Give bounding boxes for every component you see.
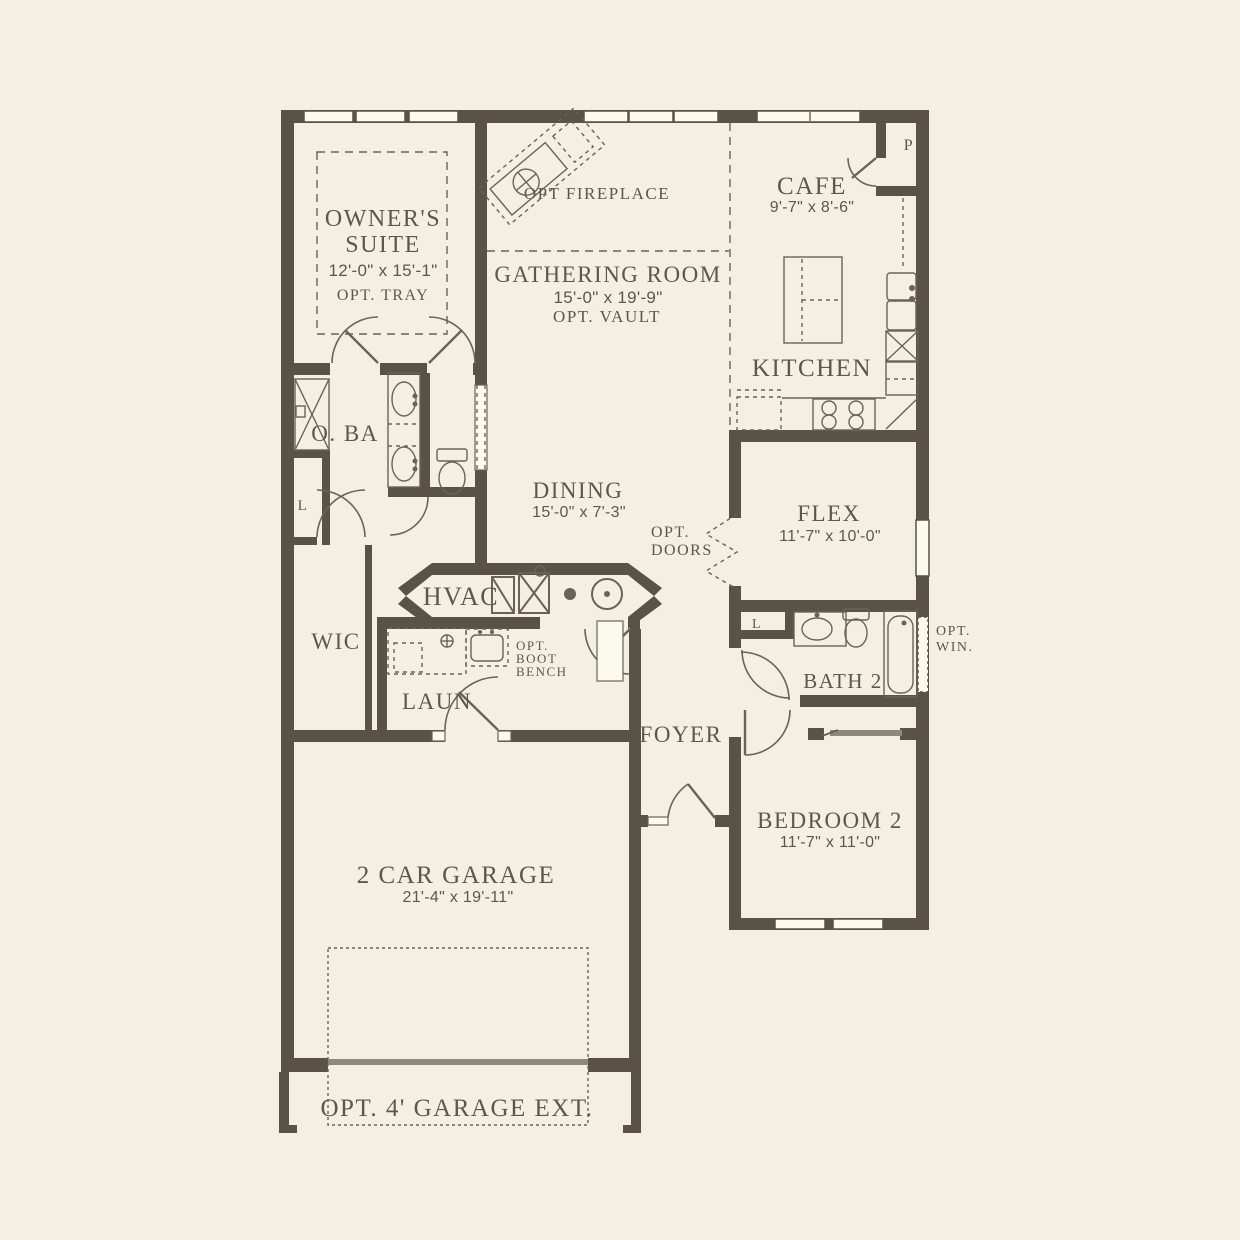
opt-window — [918, 617, 928, 692]
dining-label: DINING — [533, 478, 624, 503]
range-cooktop — [813, 399, 875, 430]
cafe-label: CAFE — [777, 173, 847, 200]
kitchen-cabinets — [737, 198, 918, 430]
closet-rod — [822, 730, 902, 736]
owners-suite-window — [409, 111, 458, 122]
double-vanity — [388, 373, 420, 487]
floor-drain — [564, 588, 576, 600]
kitchen-island — [784, 257, 842, 343]
owners-suite-window — [304, 111, 353, 122]
owners-suite-label2: SUITE — [345, 232, 421, 258]
water-heater — [592, 579, 622, 609]
bath2-linen-label: L — [752, 617, 762, 632]
refrigerator-space — [886, 331, 918, 361]
kitchen-sink — [887, 273, 916, 330]
kitchen-label: KITCHEN — [752, 355, 872, 382]
bath2-door — [742, 650, 790, 698]
hvac-label: HVAC — [423, 582, 499, 611]
flex-label: FLEX — [797, 501, 861, 526]
owners-bath-label: O. BA — [311, 421, 379, 446]
bath2-label: BATH 2 — [803, 669, 883, 693]
gathering-window — [584, 111, 628, 122]
washer-dryer — [388, 628, 466, 674]
garage-label: 2 CAR GARAGE — [357, 862, 556, 889]
dining-dims: 15'-0" x 7'-3" — [532, 504, 626, 521]
opt-win-label: OPT. — [936, 624, 971, 639]
floorplan-canvas: OWNER'S SUITE 12'-0" x 15'-1" OPT. TRAY … — [0, 0, 1240, 1240]
bedroom2-door — [745, 710, 790, 755]
bathtub — [884, 611, 917, 697]
cafe-dims: 9'-7" x 8'-6" — [770, 199, 855, 216]
bedroom2-window — [833, 919, 883, 929]
bath2-vanity — [794, 612, 846, 646]
opt-doors-label2: DOORS — [651, 542, 713, 559]
garage-door-jamb — [498, 731, 511, 741]
pantry-label: P — [904, 137, 914, 154]
front-door — [668, 784, 688, 817]
floorplan-svg: OWNER'S SUITE 12'-0" x 15'-1" OPT. TRAY … — [0, 0, 1240, 1240]
gathering-room-dims: 15'-0" x 19'-9" — [553, 288, 662, 307]
linen-label: L — [298, 498, 309, 514]
hall-door — [741, 652, 789, 700]
gathering-window — [629, 111, 673, 122]
wic-label: WIC — [311, 629, 360, 654]
garage-door-jamb — [432, 731, 445, 741]
vanity-hall-door — [390, 497, 428, 535]
garage-ext-label: OPT. 4' GARAGE EXT. — [320, 1095, 593, 1122]
garage-door — [328, 1059, 588, 1065]
owners-suite-dims: 12'-0" x 15'-1" — [328, 261, 437, 280]
boot-bench-label3: BENCH — [516, 664, 568, 679]
boot-bench — [597, 621, 623, 681]
foyer-label: FOYER — [640, 722, 723, 747]
flex-window — [916, 520, 929, 576]
laundry-label: LAUN — [402, 689, 472, 714]
owners-suite-window — [356, 111, 405, 122]
opt-fireplace-label: OPT FIREPLACE — [524, 184, 670, 203]
owners-suite-option: OPT. TRAY — [337, 287, 429, 304]
opt-win-label2: WIN. — [936, 640, 974, 655]
bedroom2-label: BEDROOM 2 — [757, 808, 903, 833]
cafe-window — [757, 111, 860, 122]
gathering-window — [674, 111, 718, 122]
front-door-sill — [648, 817, 668, 825]
garage-dims: 21'-4" x 19'-11" — [403, 889, 514, 906]
flex-dims: 11'-7" x 10'-0" — [779, 528, 881, 545]
bedroom2-window — [775, 919, 825, 929]
bath2-toilet — [843, 609, 869, 647]
owners-suite-label: OWNER'S — [325, 206, 441, 232]
utility-sink — [466, 629, 508, 666]
gathering-room-label: GATHERING ROOM — [494, 262, 721, 287]
gathering-room-option: OPT. VAULT — [553, 307, 661, 326]
bedroom2-dims: 11'-7" x 11'-0" — [780, 834, 881, 851]
fireplace — [479, 108, 605, 224]
opt-doors-label: OPT. — [651, 524, 690, 541]
